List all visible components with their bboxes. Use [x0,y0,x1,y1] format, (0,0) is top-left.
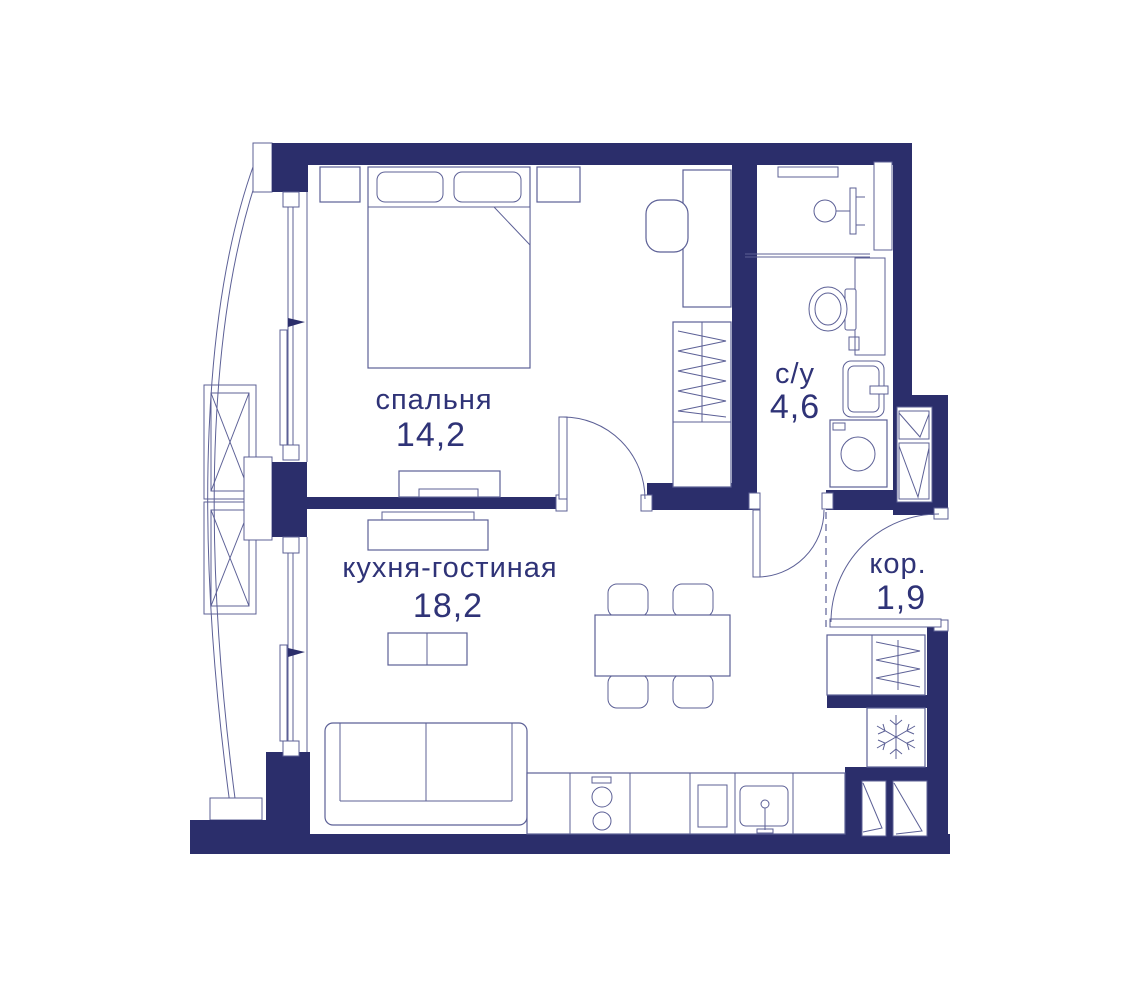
door-leaf [753,510,760,577]
tv-console-living [368,520,488,550]
pillow [454,172,521,202]
wall-top [272,143,912,165]
bedroom-furniture [320,167,731,497]
dining-set [595,584,730,708]
vent-shaft-icon [897,407,932,502]
hall-wardrobe [827,635,925,695]
desk [683,170,731,307]
pillow [377,172,443,202]
wall-bottom [190,834,950,854]
area-label-corridor: 1,9 [876,579,926,617]
wall-corner-bottom-left [266,752,310,834]
kitchen-sink [740,786,788,833]
wall-bathroom-left [732,163,757,510]
fridge [867,708,925,767]
dining-chair [608,674,648,708]
bathroom-fixtures [745,167,888,487]
desk-chair [646,200,688,252]
washing-machine [830,420,887,487]
dining-chair [608,584,648,617]
dining-chair [673,584,713,617]
shower-shelf [778,167,838,177]
kitchen-counter [527,773,845,834]
wall-bedroom-living [307,497,563,509]
tv-icon [419,489,478,497]
door-swing-arc [563,417,645,499]
area-label-bathroom: 4,6 [770,388,820,426]
wall-right-upper [893,143,912,400]
wardrobe-bedroom [673,322,731,487]
nightstand [537,167,580,202]
door-swing-arc [757,510,824,577]
wall-bathroom-bottom [826,490,893,510]
wall-right-lower [927,622,948,854]
window-flap-icon [288,648,305,657]
faucet-icon [870,386,888,394]
dining-table [595,615,730,676]
room-label-bedroom: спальня [375,384,492,416]
tv-icon [382,512,474,520]
shower-head-icon [814,188,865,234]
window-living [280,537,307,756]
wall-pier-left [272,462,307,537]
bathroom-sink [843,361,888,417]
window-bedroom [280,192,307,462]
vent-shaft-icon [862,781,927,836]
nightstand [320,167,360,202]
room-label-bathroom: с/у [775,358,815,390]
door-leaf [830,619,941,627]
room-label-kitchen-living: кухня-гостиная [342,552,557,584]
sofa [325,723,527,825]
door-leaf [559,417,567,499]
dining-chair [673,674,713,708]
wall-corner-top-left [272,143,308,192]
room-label-corridor: кор. [869,548,926,580]
walls [190,143,950,854]
window-flap-icon [288,318,305,327]
toilet [809,258,885,355]
floor-plan-drawing: спальня 14,2 кухня-гостиная 18,2 с/у 4,6… [0,0,1143,1000]
bedroom-door [556,417,652,511]
bathroom-door [749,493,833,577]
wall-niche [874,162,892,250]
area-label-kitchen-living: 18,2 [413,587,483,625]
floor-plan: спальня 14,2 кухня-гостиная 18,2 с/у 4,6… [0,0,1143,1000]
area-label-bedroom: 14,2 [396,416,466,454]
